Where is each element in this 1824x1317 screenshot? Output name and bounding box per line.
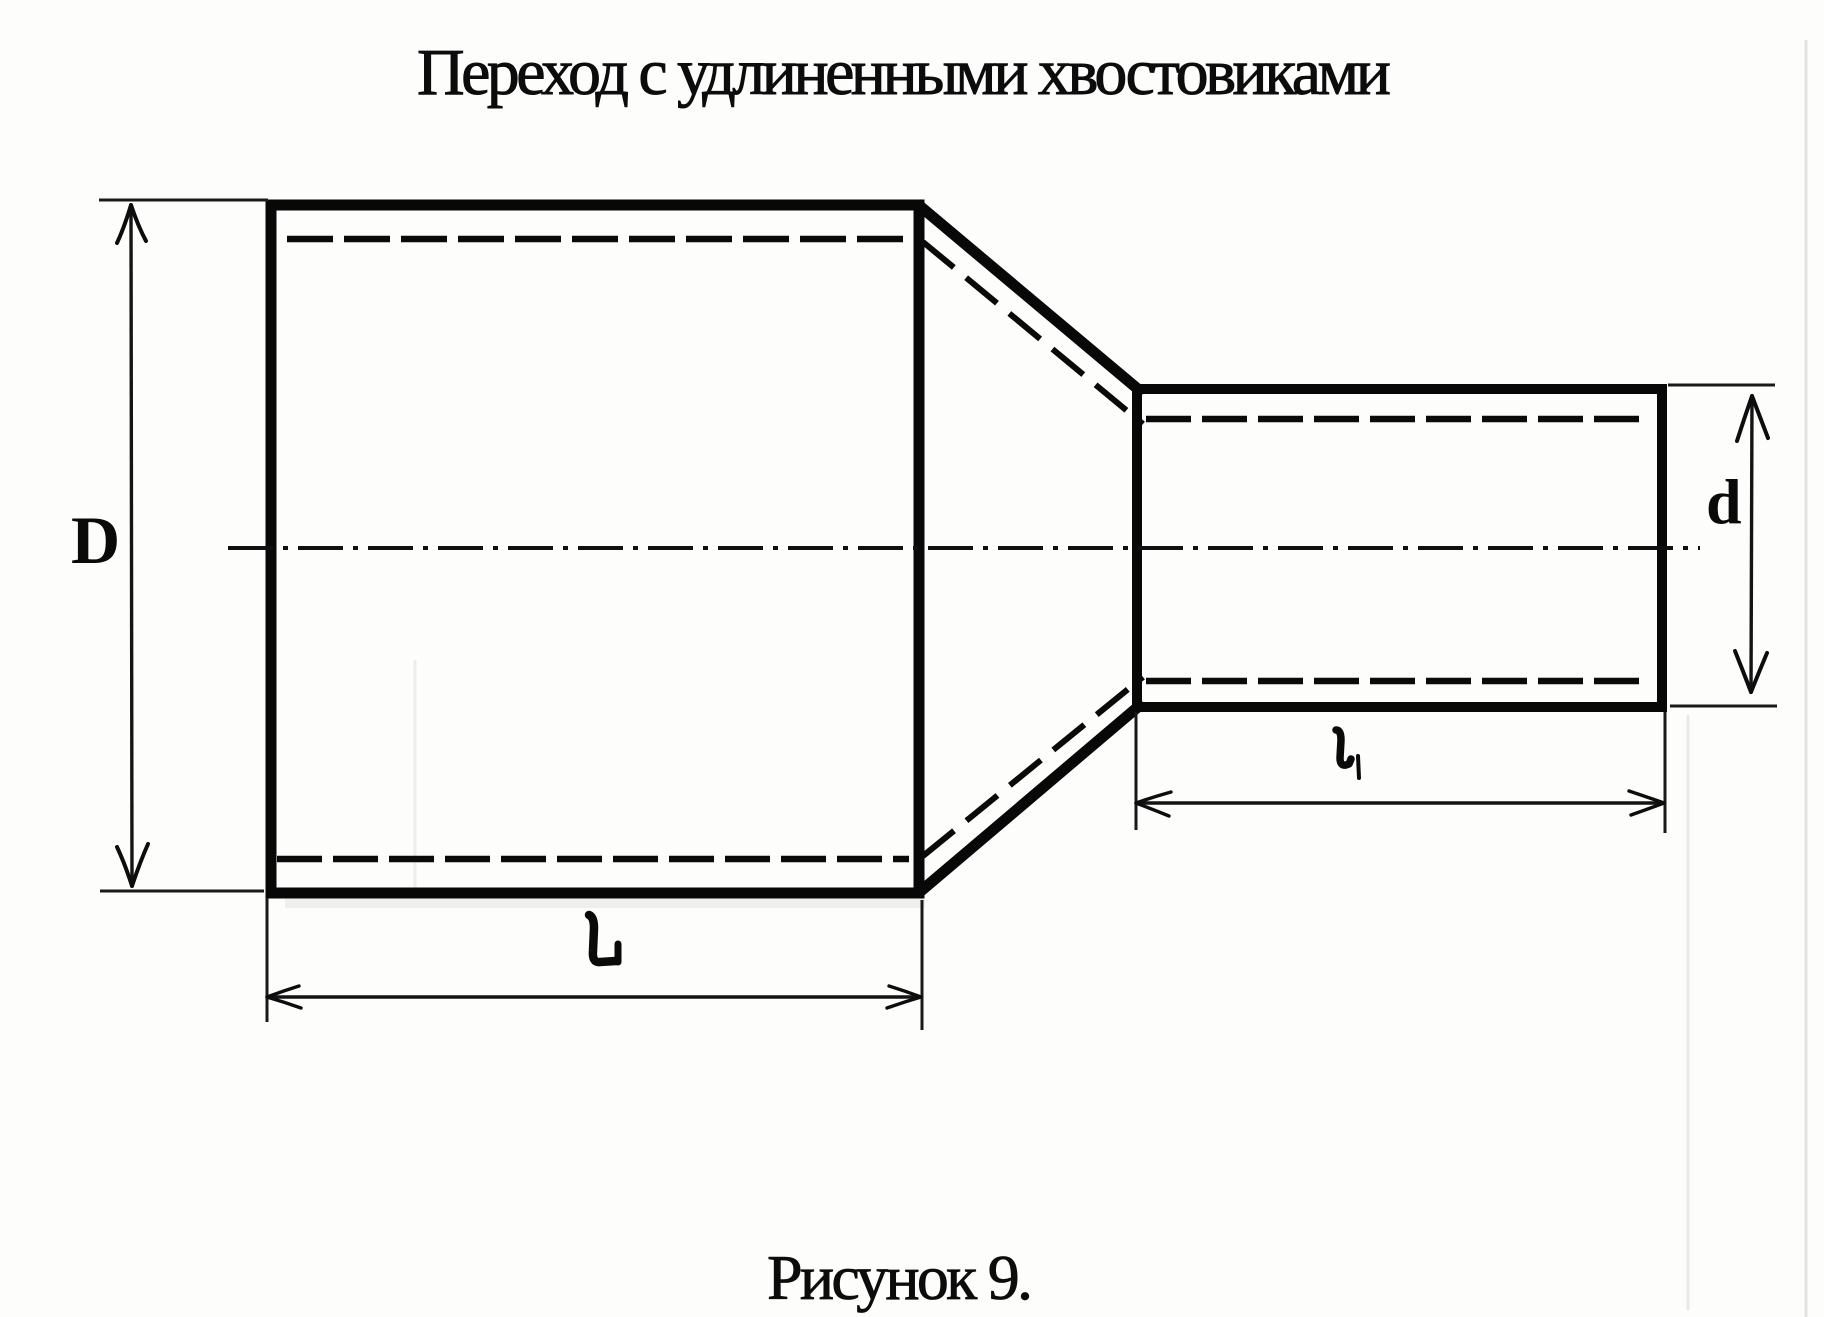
svg-text:d: d: [1706, 466, 1742, 537]
svg-text:D: D: [71, 502, 120, 578]
svg-text:Переход с удлиненными хвостови: Переход с удлиненными хвостовиками: [417, 36, 1391, 109]
svg-text:Рисунок 9.: Рисунок 9.: [767, 1242, 1033, 1313]
